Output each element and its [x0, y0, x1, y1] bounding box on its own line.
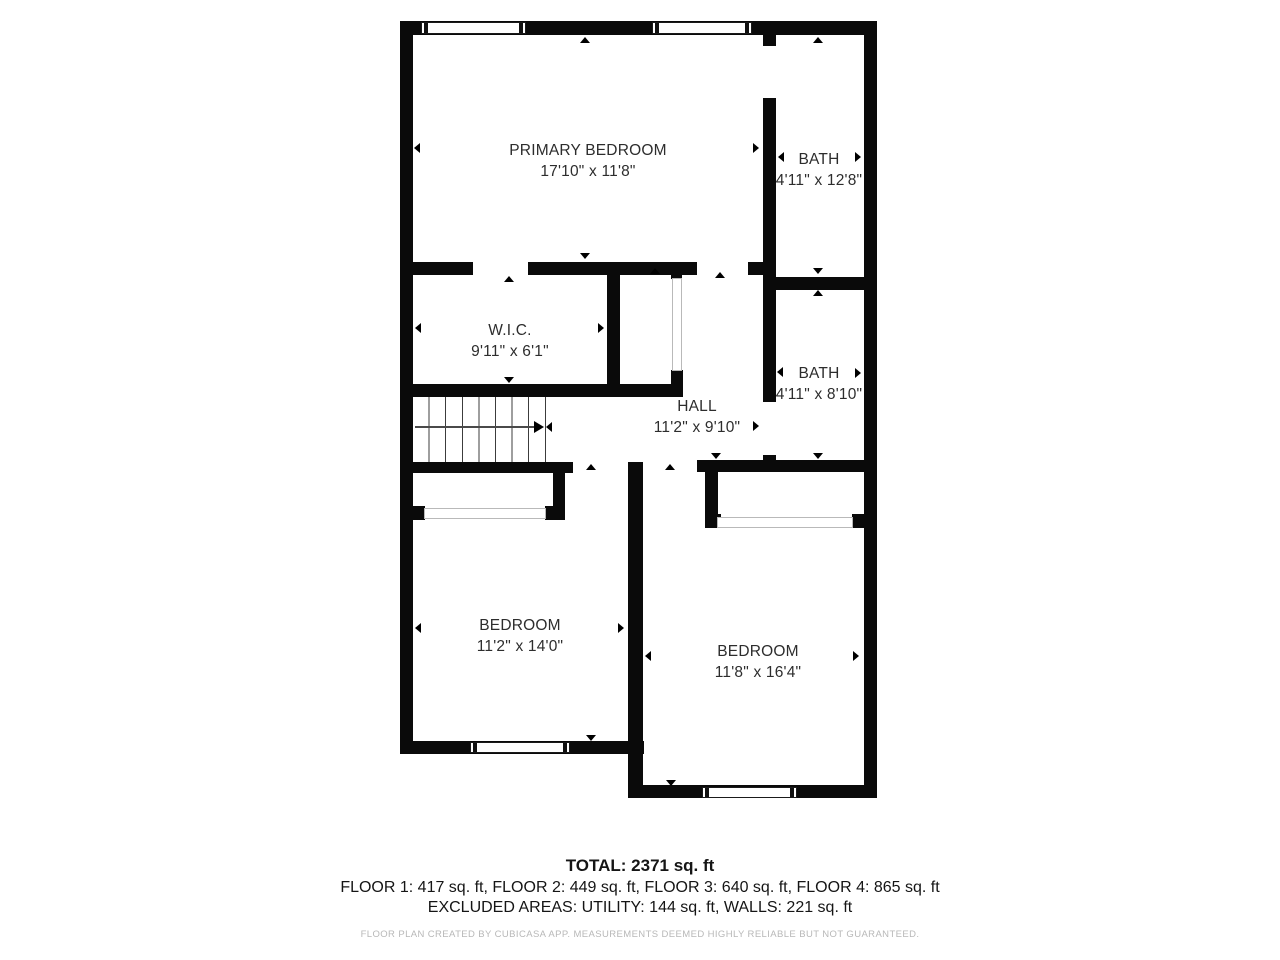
dimension-arrow — [504, 377, 514, 383]
room-name: W.I.C. — [410, 320, 610, 341]
room-label-bedroom-right: BEDROOM 11'8" x 16'4" — [658, 641, 858, 683]
wall — [400, 262, 473, 275]
disclaimer-text: FLOOR PLAN CREATED BY CUBICASA APP. MEAS… — [0, 929, 1280, 940]
wall — [763, 277, 864, 290]
dimension-arrow — [813, 290, 823, 296]
closet-doors — [717, 517, 853, 528]
door-arrow — [586, 464, 596, 470]
dimension-arrow — [580, 253, 590, 259]
room-name: BATH — [758, 363, 880, 384]
dimension-arrow — [546, 422, 552, 432]
window — [470, 742, 570, 753]
window — [421, 22, 526, 34]
total-area-text: TOTAL: 2371 sq. ft — [0, 856, 1280, 876]
room-label-bath-mid: BATH 4'11" x 8'10" — [758, 363, 880, 405]
dimension-arrow — [650, 268, 660, 274]
wall — [545, 506, 565, 520]
floor-plan-page: PRIMARY BEDROOM 17'10" x 11'8" BATH 4'11… — [0, 0, 1280, 960]
room-dimensions: 9'11" x 6'1" — [410, 341, 610, 362]
room-dimensions: 4'11" x 12'8" — [758, 170, 880, 191]
room-label-primary-bedroom: PRIMARY BEDROOM 17'10" x 11'8" — [438, 140, 738, 182]
dimension-arrow — [414, 143, 420, 153]
wall — [852, 514, 868, 528]
room-dimensions: 17'10" x 11'8" — [438, 161, 738, 182]
pocket-door — [672, 278, 682, 371]
window — [652, 22, 752, 34]
dimension-arrow — [580, 37, 590, 43]
wall — [400, 506, 425, 520]
dimension-arrow — [504, 276, 514, 282]
dimension-arrow — [586, 735, 596, 741]
wall — [864, 21, 877, 798]
room-name: BATH — [758, 149, 880, 170]
stair-direction-arrow-icon — [534, 421, 544, 433]
door-arrow — [665, 464, 675, 470]
room-label-bedroom-left: BEDROOM 11'2" x 14'0" — [420, 615, 620, 657]
window — [702, 787, 797, 798]
dimension-arrow — [813, 37, 823, 43]
room-dimensions: 11'8" x 16'4" — [658, 662, 858, 683]
dimension-arrow — [813, 268, 823, 274]
room-dimensions: 4'11" x 8'10" — [758, 384, 880, 405]
room-name: BEDROOM — [420, 615, 620, 636]
closet-doors — [424, 508, 546, 519]
stair-direction-line — [415, 426, 535, 428]
wall — [671, 370, 683, 386]
door-arrow — [715, 272, 725, 278]
excluded-areas-text: EXCLUDED AREAS: UTILITY: 144 sq. ft, WAL… — [0, 899, 1280, 917]
wall — [400, 462, 573, 473]
dimension-arrow — [813, 453, 823, 459]
room-dimensions: 11'2" x 14'0" — [420, 636, 620, 657]
dimension-arrow — [711, 453, 721, 459]
room-name: PRIMARY BEDROOM — [438, 140, 738, 161]
dimension-arrow — [645, 651, 651, 661]
wall — [697, 460, 877, 472]
room-label-bath-top: BATH 4'11" x 12'8" — [758, 149, 880, 191]
room-label-wic: W.I.C. 9'11" x 6'1" — [410, 320, 610, 362]
room-dimensions: 11'2" x 9'10" — [597, 417, 797, 438]
staircase — [413, 397, 546, 462]
room-name: BEDROOM — [658, 641, 858, 662]
floor-areas-text: FLOOR 1: 417 sq. ft, FLOOR 2: 449 sq. ft… — [0, 879, 1280, 897]
wall — [763, 35, 776, 46]
wall — [705, 472, 718, 519]
wall — [628, 462, 643, 798]
dimension-arrow — [666, 780, 676, 786]
